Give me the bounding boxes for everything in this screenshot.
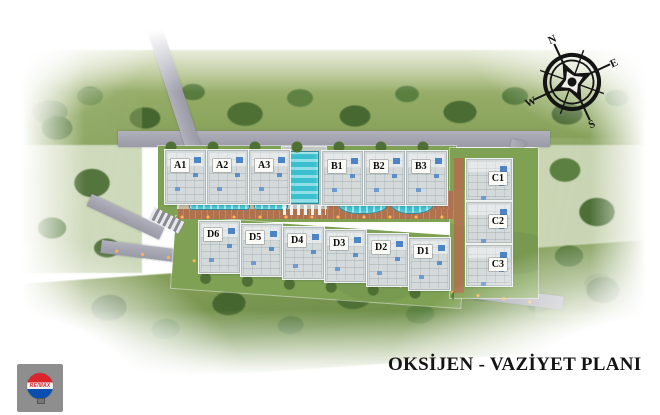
building-label: D1: [414, 245, 432, 258]
site-plan-image: A1A2A3B1B2B3C1C2C3D6D5D4D3D2D1 N E S W O…: [0, 0, 660, 415]
building-label: A2: [213, 159, 231, 172]
building-c1: C1: [466, 159, 512, 200]
building-d4: D4: [283, 227, 324, 279]
building-label: D5: [246, 231, 264, 244]
compass-s: S: [587, 118, 598, 131]
tree-grove-right: [535, 138, 650, 318]
building-c2: C2: [466, 202, 512, 243]
plan-title: OKSİJEN - VAZİYET PLANI: [388, 354, 641, 376]
walkway-east: [454, 158, 464, 293]
building-d3: D3: [325, 230, 366, 282]
building-label: B3: [412, 160, 430, 173]
main-pool: [288, 151, 319, 204]
building-a1: A1: [165, 150, 206, 204]
building-label: A1: [171, 159, 189, 172]
building-b1: B1: [322, 151, 363, 205]
compass-e: E: [608, 56, 620, 70]
building-label: C2: [489, 215, 507, 228]
building-label: D6: [204, 228, 222, 241]
building-label: D3: [330, 237, 348, 250]
path-lights: [180, 215, 455, 219]
building-label: C1: [489, 172, 507, 185]
compass-rose: N E S W: [522, 32, 622, 132]
balloon-icon: RE/MAX: [27, 373, 53, 404]
remax-logo: RE/MAX: [17, 364, 63, 412]
building-d6: D6: [199, 221, 240, 273]
building-label: D2: [372, 241, 390, 254]
building-b3: B3: [406, 151, 447, 205]
building-label: B2: [370, 160, 388, 173]
building-b2: B2: [364, 151, 405, 205]
building-label: A3: [255, 159, 273, 172]
building-label: C3: [489, 258, 507, 271]
building-d2: D2: [367, 234, 408, 286]
compass-n: N: [546, 33, 558, 47]
building-label: B1: [328, 160, 346, 173]
building-label: D4: [288, 234, 306, 247]
building-c3: C3: [466, 245, 512, 286]
sun-loungers: [283, 205, 326, 215]
building-a2: A2: [207, 150, 248, 204]
building-a3: A3: [249, 150, 290, 204]
building-d1: D1: [409, 238, 450, 290]
balloon-basket: [37, 398, 45, 404]
building-d5: D5: [241, 224, 282, 276]
brand-text: RE/MAX: [27, 383, 53, 389]
compass-w: W: [523, 95, 538, 111]
